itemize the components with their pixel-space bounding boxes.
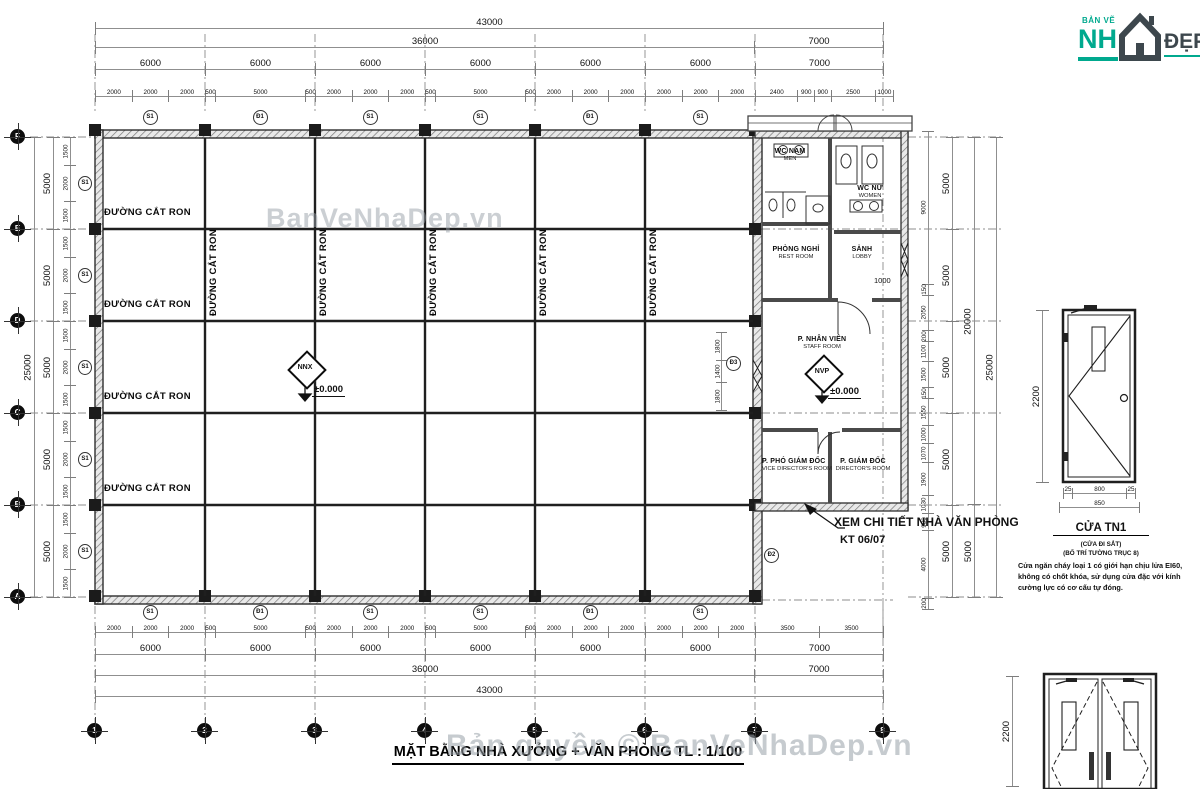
dim-bottom-total: 43000 — [95, 690, 884, 703]
grid-col-1: 1 — [87, 723, 102, 738]
office-inner-dim: 1000 — [874, 276, 891, 285]
room-wc-nu: WC NỮWOMEN — [845, 185, 895, 199]
house-icon — [1116, 10, 1164, 64]
door1-title: CỬA TN1 — [1053, 522, 1149, 536]
dim-top-mid: 360007000 — [95, 41, 884, 54]
room-staff: P. NHÂN VIÊNSTAFF ROOM — [792, 336, 852, 350]
watermark-center: BanVeNhaDep.vn — [266, 203, 504, 234]
dim-door1-total: 850 — [1059, 502, 1140, 513]
door1-note: Cửa ngăn cháy loại 1 có giới hạn chịu lử… — [1018, 561, 1196, 594]
dim-top-bays: 6000600060006000600060007000 — [95, 63, 884, 76]
joint-label-h4: ĐƯỜNG CẮT RON — [104, 483, 191, 494]
blueprint-canvas: 43000 360007000 600060006000600060006000… — [0, 0, 1200, 789]
door-tn1-elevation — [1063, 305, 1135, 482]
callout-line1: XEM CHI TIẾT NHÀ VĂN PHÒNG — [834, 515, 1019, 529]
logo-nh-text: NH — [1078, 24, 1117, 55]
grid-row-b: B — [10, 497, 25, 512]
entrance-canopy — [748, 115, 912, 131]
grid-row-a: A — [10, 589, 25, 604]
level-value-nvp: ±0.000 — [828, 386, 861, 399]
dim-bottom-bays: 6000600060006000600060007000 — [95, 648, 884, 661]
double-door-elevation — [1044, 674, 1156, 789]
level-code-nvp: NVP — [805, 368, 839, 375]
grid-col-2: 2 — [197, 723, 212, 738]
factory-walls — [95, 130, 762, 604]
grid-col-4: 4 — [417, 723, 432, 738]
logo-dep-text: ĐẸP — [1164, 30, 1200, 54]
grid-row-f: F — [10, 129, 25, 144]
room-lobby: SẢNHLOBBY — [838, 246, 886, 260]
dim-door1-height: 2200 — [1036, 310, 1049, 483]
joint-label-v4: ĐƯỜNG CẮT RON — [538, 229, 549, 316]
logo-underline — [1078, 57, 1118, 61]
level-code-nnx: NNX — [288, 364, 322, 371]
dim-door1-widths: 2580025 — [1063, 488, 1136, 499]
joint-label-v2: ĐƯỜNG CẮT RON — [318, 229, 329, 316]
room-director: P. GIÁM ĐỐCDIRECTOR'S ROOM — [834, 458, 892, 472]
grid-row-c: C — [10, 405, 25, 420]
dim-left-bays: 50005000500050005000 — [47, 137, 60, 598]
joint-label-v1: ĐƯỜNG CẮT RON — [208, 229, 219, 316]
door1-subtitle2: (BỐ TRÍ TƯỜNG TRỤC 8) — [1021, 550, 1181, 557]
dim-bottom-small-factory: 2000200020005005000500200020002000500500… — [95, 626, 756, 638]
dim-door2-height: 2200 — [1006, 676, 1019, 787]
door1-subtitle1: (CỬA ĐI SẮT) — [1021, 541, 1181, 548]
joint-label-h2: ĐƯỜNG CẮT RON — [104, 299, 191, 310]
dim-left-small: 1500200015001500200015001500200015001500… — [64, 137, 76, 598]
banvenhadep-logo: BẢN VẼ NH ĐẸP — [1072, 10, 1198, 72]
level-value-nnx: ±0.000 — [312, 384, 345, 397]
room-vice-director: P. PHÓ GIÁM ĐỐCVICE DIRECTOR'S ROOM — [762, 458, 824, 472]
dim-top-small-office: 240090090025001000 — [755, 90, 894, 102]
grid-row-d: D — [10, 313, 25, 328]
dim-bottom-mid: 360007000 — [95, 669, 884, 682]
markers-wall-left: S1S1S1S1S1 — [78, 137, 92, 597]
dim-top-small-factory: 2000200020005005000500200020002000500500… — [95, 90, 756, 102]
dim-d3-door: 180014001800 — [716, 332, 727, 411]
watermark-bottom: Bản quyền © BanVeNhaDep.vn — [446, 729, 913, 763]
room-wc-nam: WC NAMMEN — [765, 148, 815, 162]
joint-label-h3: ĐƯỜNG CẮT RON — [104, 391, 191, 402]
markers-wall-bottom: S1Đ1S1S1Đ1S1 — [95, 605, 755, 619]
dim-right-small: 9000150205020011001500150155010001070190… — [922, 131, 934, 610]
level-stems — [299, 381, 828, 403]
room-rest: PHÒNG NGHỈREST ROOM — [768, 246, 824, 260]
marker-d3: Đ3 — [726, 356, 741, 371]
joint-label-v3: ĐƯỜNG CẮT RON — [428, 229, 439, 316]
joint-label-v5: ĐƯỜNG CẮT RON — [648, 229, 659, 316]
marker-d2: Đ2 — [764, 548, 779, 563]
logo-underline-2 — [1164, 55, 1200, 57]
callout-line2: KT 06/07 — [840, 534, 885, 546]
joint-label-h1: ĐƯỜNG CẮT RON — [104, 207, 191, 218]
grid-row-e: E — [10, 221, 25, 236]
grid-col-3: 3 — [307, 723, 322, 738]
dim-top-total: 43000 — [95, 22, 884, 35]
markers-wall-top: S1Đ1S1S1Đ1S1 — [95, 110, 755, 124]
dim-left-total: 25000 — [28, 137, 41, 598]
dim-bottom-small-office: 35003500 — [755, 626, 884, 638]
